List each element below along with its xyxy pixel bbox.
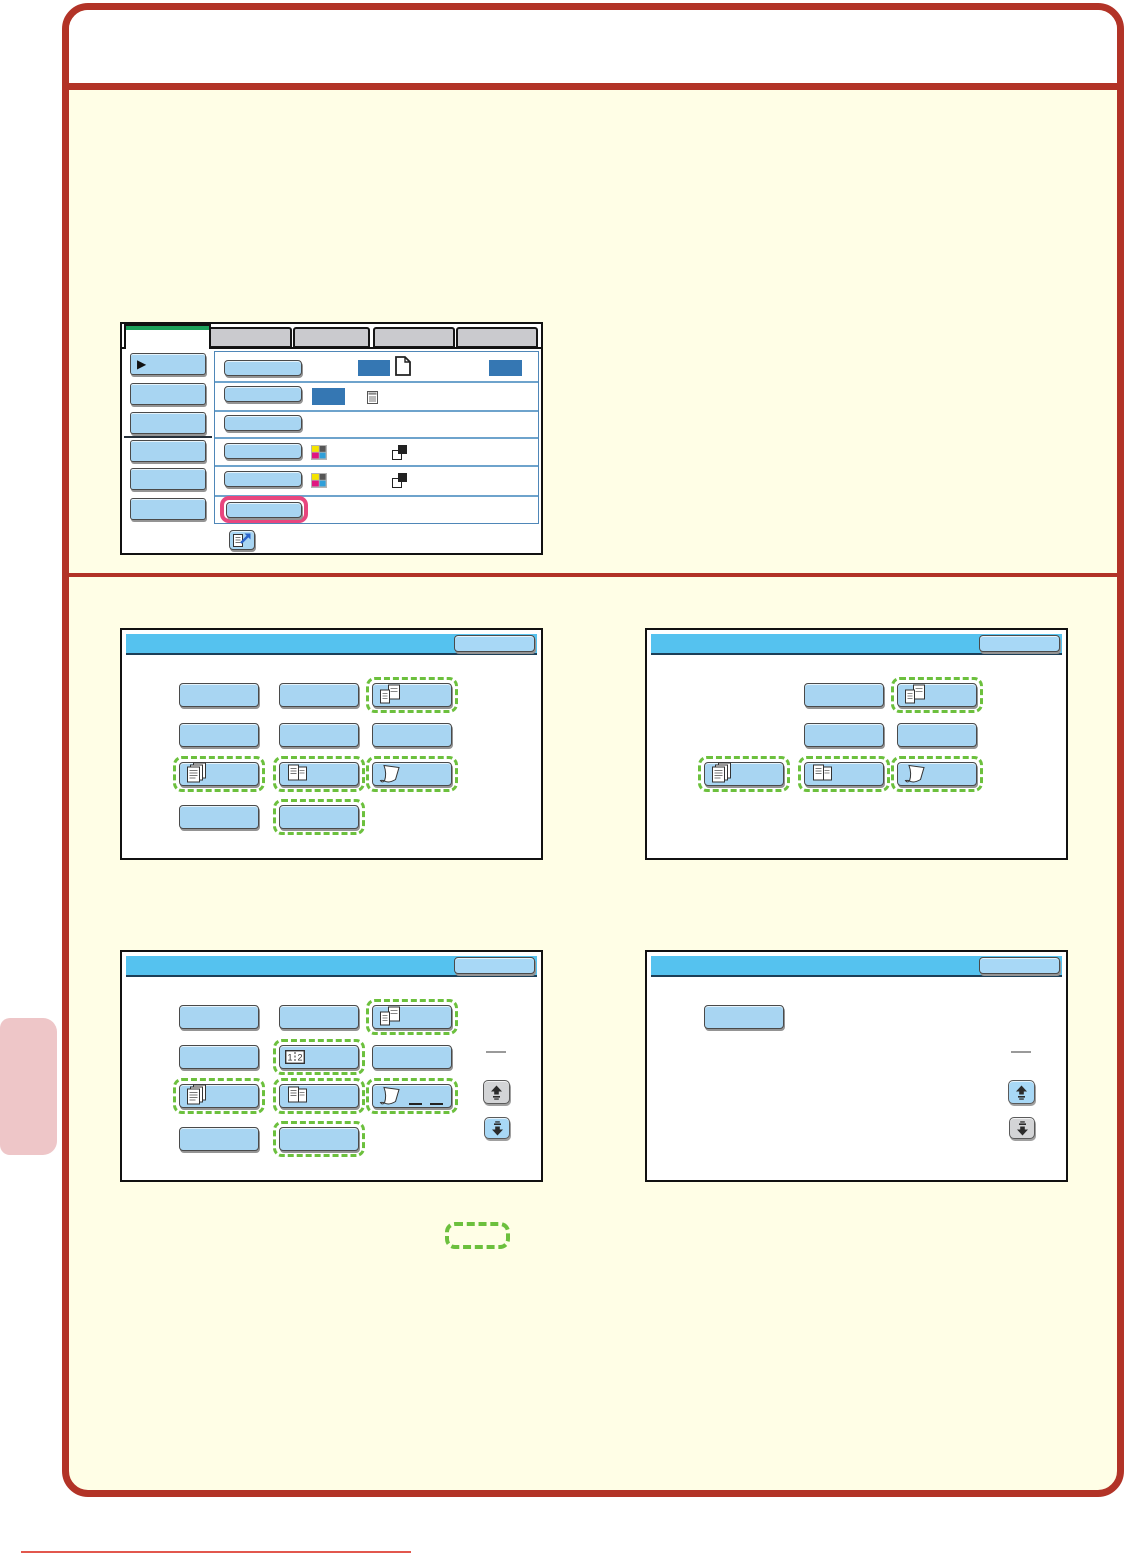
- play-triangle-icon: ▶: [137, 358, 146, 370]
- sidebar-key-2[interactable]: [130, 383, 206, 405]
- active-tab-stripe: [126, 326, 209, 330]
- screen-tab-2[interactable]: [208, 327, 292, 348]
- bw-overlap-squares-icon: [391, 472, 408, 489]
- row-divider: [215, 381, 538, 383]
- scroll-up-key[interactable]: [483, 1080, 510, 1104]
- arrow-up-icon: [490, 1085, 503, 1100]
- row-divider: [215, 465, 538, 467]
- green-dashed-highlight: [698, 756, 790, 792]
- green-dashed-highlight: [273, 799, 365, 835]
- panel-header-bar: [651, 634, 1062, 655]
- screen-tab-5[interactable]: [456, 327, 538, 348]
- mixed-size-documents-icon: [378, 684, 403, 707]
- function-key[interactable]: [179, 762, 259, 786]
- function-key[interactable]: [279, 1005, 359, 1029]
- function-key[interactable]: [279, 683, 359, 707]
- green-dashed-highlight: [273, 1078, 365, 1114]
- green-dashed-highlight: [173, 1078, 265, 1114]
- touch-panel-special-modes-3-page2: [645, 950, 1068, 1182]
- green-dashed-highlight: [891, 677, 983, 713]
- document-pair-icon: [285, 763, 310, 786]
- function-key[interactable]: [279, 1084, 359, 1108]
- function-key[interactable]: [179, 723, 259, 747]
- svg-text:2: 2: [297, 1053, 302, 1063]
- function-key[interactable]: [372, 1005, 452, 1029]
- function-key[interactable]: [897, 723, 977, 747]
- function-key[interactable]: [372, 683, 452, 707]
- green-dashed-highlight: [366, 756, 458, 792]
- function-key[interactable]: [804, 683, 884, 707]
- sidebar-key-1[interactable]: ▶: [130, 353, 206, 375]
- register-program-icon: [231, 531, 253, 549]
- function-key[interactable]: [897, 762, 977, 786]
- manual-page: ▶: [0, 0, 1126, 1555]
- document-pair-icon: [285, 1085, 310, 1108]
- function-key[interactable]: [372, 1084, 452, 1108]
- function-key[interactable]: [179, 1005, 259, 1029]
- function-key[interactable]: [179, 805, 259, 829]
- stacked-documents-icon: [185, 762, 208, 787]
- panel-header-bar: [126, 634, 537, 655]
- document-pair-icon: [810, 763, 835, 786]
- green-dashed-highlight: [366, 1078, 458, 1114]
- function-key[interactable]: [279, 1127, 359, 1151]
- function-key[interactable]: [704, 1005, 784, 1029]
- touch-panel-special-modes-2: [645, 628, 1068, 860]
- footer-rule: [21, 1551, 411, 1553]
- section-divider: [69, 573, 1117, 577]
- function-key[interactable]: [372, 723, 452, 747]
- sidebar-key-5[interactable]: [130, 468, 206, 490]
- mixed-size-documents-icon: [903, 684, 928, 707]
- value-box: [312, 388, 345, 405]
- ok-button[interactable]: [454, 635, 535, 652]
- function-key[interactable]: 12: [279, 1045, 359, 1069]
- screen-tab-3[interactable]: [293, 327, 370, 348]
- screen-tab-4[interactable]: [373, 327, 455, 348]
- setting-key-row6-highlighted[interactable]: [226, 502, 302, 518]
- function-key[interactable]: [279, 723, 359, 747]
- blank-page-icon: [392, 355, 412, 377]
- stacked-documents-icon: [185, 1084, 208, 1109]
- function-key[interactable]: [179, 683, 259, 707]
- arrow-up-icon: [1015, 1085, 1028, 1100]
- touch-panel-special-modes-3-page1: 12: [120, 950, 543, 1182]
- arrow-down-icon: [491, 1121, 504, 1136]
- ok-button[interactable]: [979, 957, 1060, 974]
- setting-key-row2[interactable]: [224, 386, 302, 402]
- green-dashed-highlight: [366, 677, 458, 713]
- green-dashed-highlight: [173, 756, 265, 792]
- sidebar-separator: [124, 436, 212, 438]
- stacked-documents-icon: [710, 762, 733, 787]
- function-key[interactable]: [372, 762, 452, 786]
- value-box: [358, 360, 390, 376]
- function-key[interactable]: [804, 762, 884, 786]
- function-key[interactable]: [897, 683, 977, 707]
- green-dashed-highlight: [273, 1121, 365, 1157]
- sidebar-key-4[interactable]: [130, 440, 206, 462]
- sidebar-key-3[interactable]: [130, 412, 206, 434]
- green-dashed-highlight: [891, 756, 983, 792]
- settings-list-panel: [214, 351, 539, 524]
- function-key[interactable]: [372, 1045, 452, 1069]
- green-dashed-highlight: [366, 999, 458, 1035]
- curled-sheet-icon: [378, 1086, 403, 1107]
- value-box: [489, 360, 522, 376]
- function-key[interactable]: [279, 762, 359, 786]
- sidebar-key-6[interactable]: [130, 498, 206, 520]
- register-program-key[interactable]: [229, 530, 255, 550]
- svg-text:1: 1: [287, 1053, 292, 1063]
- touch-panel-special-modes-1: [120, 628, 543, 860]
- one-two-split-icon: 12: [285, 1050, 305, 1064]
- row-divider: [215, 437, 538, 439]
- screen-tab-active[interactable]: [124, 324, 211, 349]
- highlight-ring: [220, 496, 308, 523]
- setting-key-row1[interactable]: [224, 360, 302, 376]
- curled-sheet-icon: [903, 764, 928, 785]
- setting-key-row4[interactable]: [224, 443, 302, 459]
- function-key[interactable]: [804, 723, 884, 747]
- bw-overlap-squares-icon: [391, 444, 408, 461]
- ok-button[interactable]: [454, 957, 535, 974]
- callout-header: [69, 10, 1117, 90]
- panel-header-bar: [651, 956, 1062, 977]
- row-divider: [215, 410, 538, 412]
- green-dashed-highlight: 12: [273, 1039, 365, 1075]
- scroll-up-key[interactable]: [1008, 1080, 1035, 1104]
- mixed-size-documents-icon: [378, 1006, 403, 1029]
- ok-button[interactable]: [979, 635, 1060, 652]
- function-key[interactable]: [704, 762, 784, 786]
- page-edge-tab: [0, 1018, 57, 1155]
- scroll-down-key[interactable]: [484, 1117, 510, 1139]
- green-dashed-legend-swatch: [445, 1222, 510, 1249]
- system-settings-screen: ▶: [120, 322, 543, 555]
- cmyk-squares-icon: [311, 445, 327, 460]
- arrow-down-icon: [1016, 1121, 1029, 1136]
- green-dashed-highlight: [798, 756, 890, 792]
- function-key[interactable]: [279, 805, 359, 829]
- page-indicator-line: [486, 1051, 506, 1053]
- curled-sheet-icon: [378, 764, 403, 785]
- function-key[interactable]: [179, 1084, 259, 1108]
- setting-key-row3[interactable]: [224, 415, 302, 431]
- function-key[interactable]: [179, 1127, 259, 1151]
- green-dashed-highlight: [273, 756, 365, 792]
- text-remnant-marks: [409, 1103, 445, 1105]
- page-indicator-line: [1011, 1051, 1031, 1053]
- cmyk-squares-icon: [311, 473, 327, 488]
- setting-key-row5[interactable]: [224, 471, 302, 487]
- document-list-icon: [367, 391, 378, 404]
- scroll-down-key[interactable]: [1009, 1117, 1035, 1139]
- panel-header-bar: [126, 956, 537, 977]
- function-key[interactable]: [179, 1045, 259, 1069]
